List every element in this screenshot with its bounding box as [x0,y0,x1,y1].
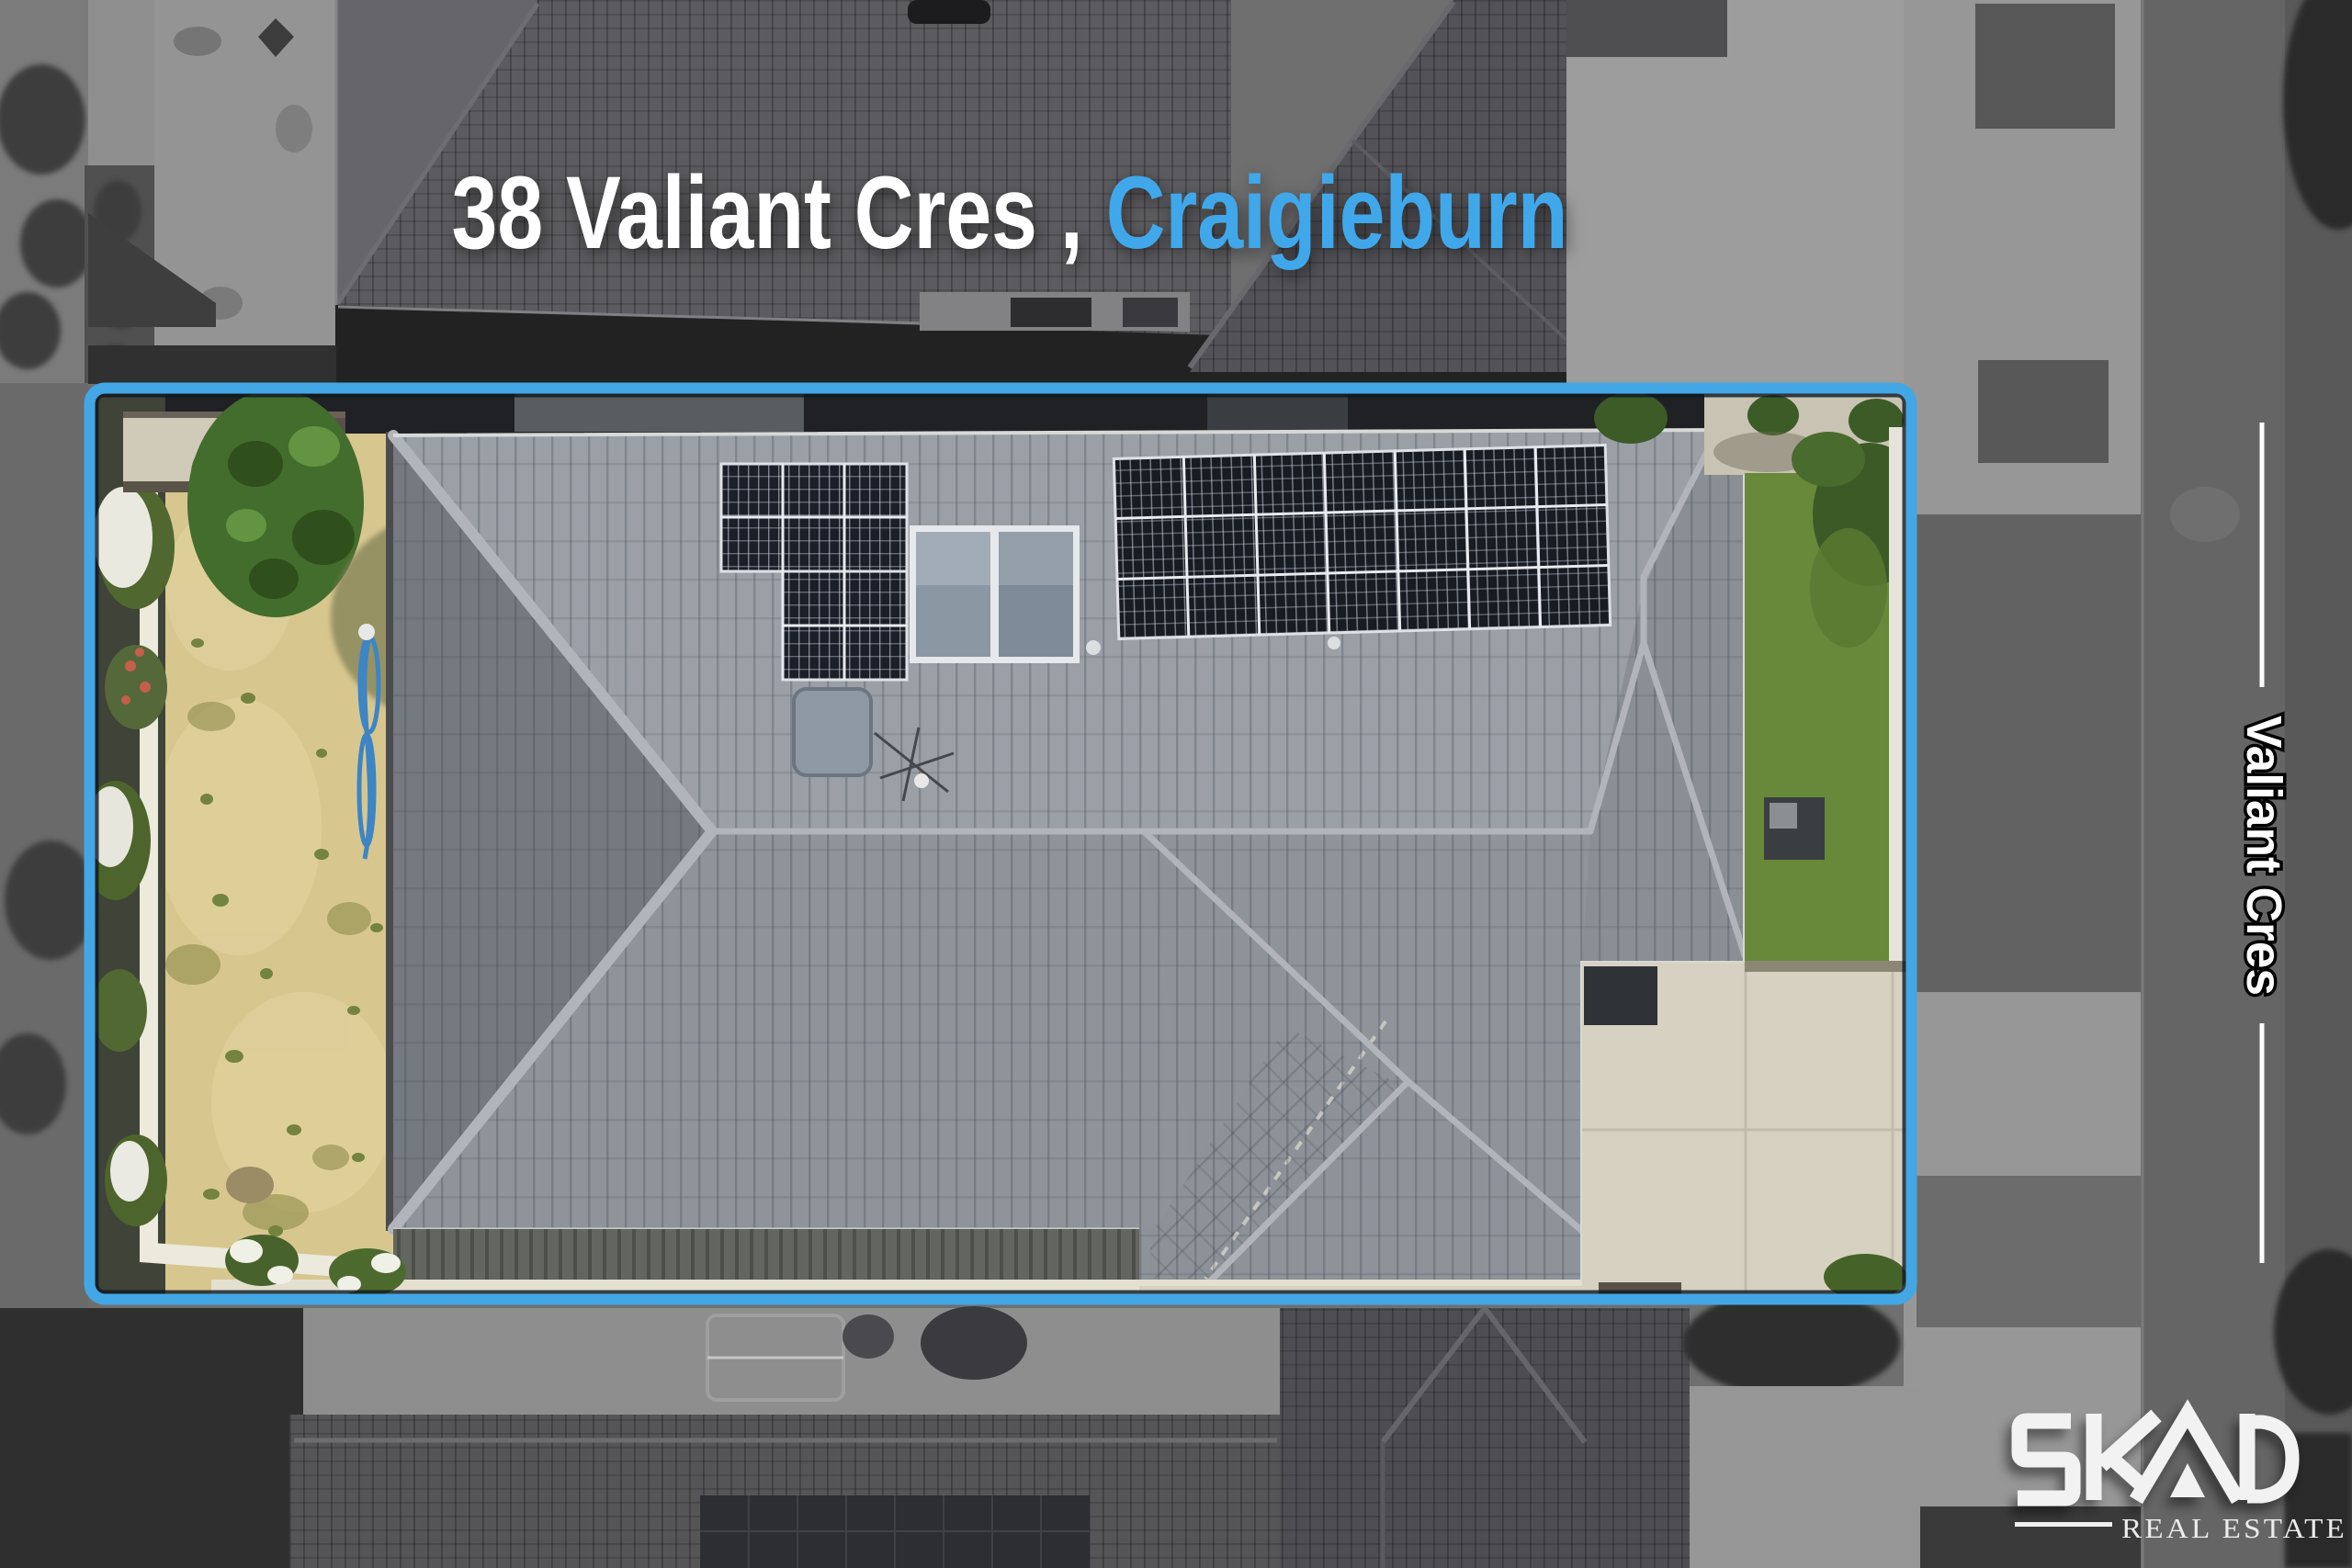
svg-text:Valiant Cres: Valiant Cres [2236,716,2291,996]
svg-text:38 Valiant Cres , Craigieburn: 38 Valiant Cres , Craigieburn [452,155,1568,270]
svg-text:REAL ESTATE: REAL ESTATE [2121,1512,2347,1544]
